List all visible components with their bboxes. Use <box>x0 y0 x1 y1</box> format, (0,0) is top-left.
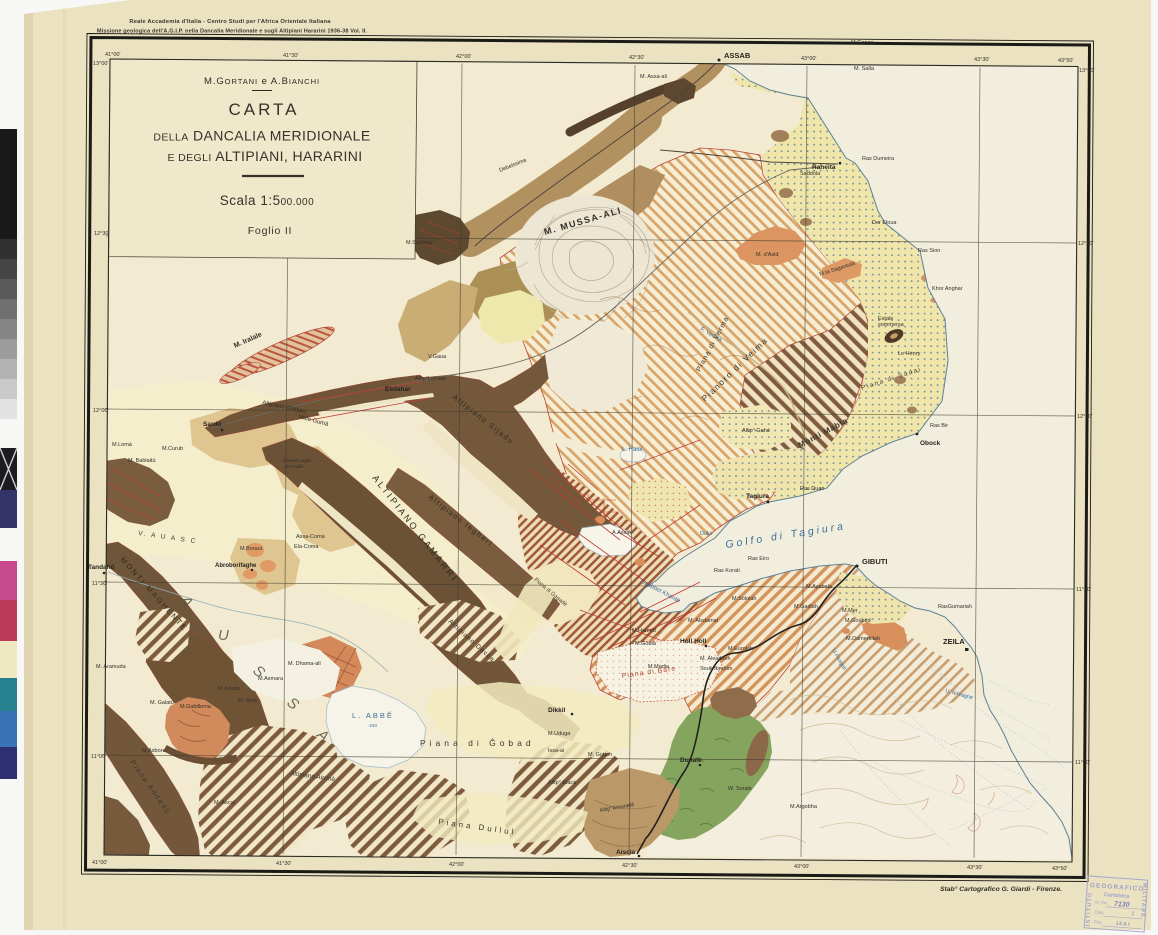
svg-text:M.Eurolah: M.Eurolah <box>728 646 753 652</box>
svg-text:Ras Dumeira: Ras Dumeira <box>862 156 895 162</box>
svg-text:M.GORTANI e A.BIANCHI: M.GORTANI e A.BIANCHI <box>204 76 320 87</box>
svg-text:41°30': 41°30' <box>276 861 292 867</box>
svg-text:1: 1 <box>1131 911 1134 917</box>
svg-text:Dunalè: Dunalè <box>680 757 702 764</box>
svg-text:GIBUTI: GIBUTI <box>862 557 887 566</box>
svg-text:M.Hamed: M.Hamed <box>632 628 656 634</box>
svg-text:Aiscia: Aiscia <box>616 849 636 856</box>
svg-text:11°30': 11°30' <box>1076 587 1091 593</box>
svg-text:Assa-Coma: Assa-Coma <box>296 534 326 540</box>
svg-text:Sardó: Sardó <box>203 421 221 428</box>
svg-text:M. Aramuda: M. Aramuda <box>96 664 127 670</box>
svg-text:43°30': 43°30' <box>974 57 990 63</box>
svg-text:Obock: Obock <box>920 440 941 447</box>
svg-text:Dikkil: Dikkil <box>548 707 566 714</box>
svg-text:12°00': 12°00' <box>1077 414 1093 420</box>
svg-text:Ela-Coma: Ela-Coma <box>294 544 319 550</box>
svg-text:M. Salta: M. Salta <box>854 66 875 72</box>
svg-text:11°00': 11°00' <box>91 754 106 760</box>
svg-text:A.Assal: A.Assal <box>612 530 631 536</box>
svg-text:Piana di Ĝobad: Piana di Ĝobad <box>420 738 535 748</box>
svg-text:sommersa: sommersa <box>878 322 905 328</box>
svg-text:M.Acurta: M.Acurta <box>218 686 241 692</box>
svg-text:42°00': 42°00' <box>456 54 472 60</box>
svg-text:Le Henry: Le Henry <box>898 351 921 357</box>
svg-text:42°00': 42°00' <box>449 862 465 868</box>
svg-text:M. Selis: M. Selis <box>238 698 258 704</box>
svg-text:M. Aleaddeh: M. Aleaddeh <box>700 656 731 662</box>
svg-text:M.Gabillema: M.Gabillema <box>180 704 212 710</box>
svg-text:M. Galatú: M. Galatú <box>150 700 174 706</box>
svg-text:W. Sorale: W. Sorale <box>728 786 752 792</box>
svg-text:Khor Anghar: Khor Anghar <box>932 286 963 292</box>
svg-text:M. Dhama-ali: M. Dhama-ali <box>288 661 321 667</box>
svg-text:Pos.: Pos. <box>1094 919 1103 925</box>
svg-text:ASSAB: ASSAB <box>724 51 751 60</box>
svg-text:Altip° Elacà: Altip° Elacà <box>548 780 577 786</box>
svg-text:Issa-ai: Issa-ai <box>548 748 564 754</box>
svg-text:43°50': 43°50' <box>1058 58 1074 64</box>
svg-text:M.Lomá: M.Lomá <box>112 442 133 448</box>
svg-text:ZEILA: ZEILA <box>943 637 965 646</box>
svg-text:Crateri-Laghi: Crateri-Laghi <box>283 458 311 464</box>
svg-text:Souk Ibrahim: Souk Ibrahim <box>700 666 733 672</box>
svg-text:M.Curub: M.Curub <box>162 446 183 452</box>
svg-text:N.°Inv.: N.°Inv. <box>1095 900 1109 906</box>
svg-text:41°30': 41°30' <box>283 53 299 59</box>
svg-text:M.Asboru: M.Asboru <box>142 748 166 754</box>
svg-text:M.Argobha: M.Argobha <box>790 804 818 810</box>
svg-text:M.Ganga: M.Ganga <box>851 40 875 46</box>
svg-text:Altip° Gahè: Altip° Gahè <box>742 428 770 434</box>
svg-text:Ras Bir: Ras Bir <box>930 423 948 429</box>
svg-text:M.Boraui: M.Boraui <box>240 546 262 552</box>
svg-text:41°00': 41°00' <box>92 860 108 866</box>
svg-text:Tagiura: Tagiura <box>746 493 769 500</box>
svg-text:42°30': 42°30' <box>622 863 638 869</box>
svg-text:M. d'Asid: M. d'Asid <box>756 252 778 258</box>
svg-text:Ras Eiro: Ras Eiro <box>748 556 769 562</box>
svg-text:Stab° Cartografico G. Giardi -: Stab° Cartografico G. Giardi - Firenze. <box>940 885 1062 893</box>
svg-text:M.Damerkilah: M.Damerkilah <box>846 636 880 642</box>
svg-text:di Fhialè: di Fhialè <box>285 464 303 470</box>
svg-text:V.Gaua: V.Gaua <box>428 354 447 360</box>
svg-text:43°00': 43°00' <box>794 864 810 870</box>
svg-text:Saddòla: Saddòla <box>800 171 821 177</box>
svg-text:43°50': 43°50' <box>1052 866 1068 872</box>
svg-text:M.Mer: M.Mer <box>842 608 858 614</box>
svg-text:Der Eloua: Der Eloua <box>872 220 897 226</box>
svg-text:M.Sololah: M.Sololah <box>732 596 756 602</box>
svg-text:42°30': 42°30' <box>629 55 645 61</box>
svg-text:41°00': 41°00' <box>105 52 121 58</box>
svg-text:M.Uduga: M.Uduga <box>548 731 571 737</box>
svg-text:Tandahó: Tandahó <box>88 564 115 571</box>
svg-text:Clas.: Clas. <box>1094 910 1105 916</box>
svg-text:13°00': 13°00' <box>93 61 109 67</box>
svg-text:M. Ascol: M. Ascol <box>214 800 235 806</box>
svg-text:U: U <box>218 627 229 644</box>
svg-text:M.Gadlah: M.Gadlah <box>794 604 818 610</box>
svg-text:RasGumariah: RasGumariah <box>938 604 972 610</box>
svg-text:M.Ayabela: M.Ayabela <box>806 584 833 590</box>
svg-text:L. Halol: L. Halol <box>622 447 642 453</box>
svg-text:M.Goubed: M.Goubed <box>845 618 871 624</box>
svg-text:M.Gobla: M.Gobla <box>635 641 657 647</box>
svg-text:Ras Sion: Ras Sion <box>918 248 940 254</box>
svg-text:Holl Holl: Holl Holl <box>680 638 707 645</box>
svg-text:M. Gotton: M. Gotton <box>588 752 612 758</box>
svg-text:M. Assa-ali: M. Assa-ali <box>640 74 667 80</box>
svg-text:Reale Accademia d'Italia - Cen: Reale Accademia d'Italia - Centro Studi … <box>129 19 331 25</box>
svg-text:CARTA: CARTA <box>228 100 299 119</box>
svg-text:Elidahar: Elidahar <box>385 386 411 393</box>
svg-text:-240: -240 <box>368 723 378 728</box>
svg-text:M. Bablaitú: M. Bablaitú <box>128 458 156 464</box>
svg-text:Dulul: Dulul <box>700 531 713 537</box>
svg-text:11°00': 11°00' <box>1075 760 1090 766</box>
svg-text:11°30': 11°30' <box>92 581 107 587</box>
svg-text:Ras Duan: Ras Duan <box>800 486 824 492</box>
svg-text:Abroborifaghe: Abroborifaghe <box>215 563 257 569</box>
svg-text:12°30': 12°30' <box>94 231 110 237</box>
svg-text:12°00': 12°00' <box>93 408 109 414</box>
svg-text:Ras Korati: Ras Korati <box>714 568 740 574</box>
svg-text:Altip°Lehadù: Altip°Lehadù <box>415 376 446 382</box>
svg-text:M.Asmara: M.Asmara <box>258 676 284 682</box>
svg-text:L. ABBĔ: L. ABBĔ <box>352 711 394 720</box>
svg-text:43°30': 43°30' <box>967 865 983 871</box>
svg-text:M. Alsdamal: M. Alsdamal <box>688 618 718 624</box>
svg-text:Raheita: Raheita <box>812 164 836 171</box>
svg-text:M.Madia: M.Madia <box>648 664 670 670</box>
svg-text:13°00': 13°00' <box>1079 68 1095 74</box>
svg-text:Foglio II: Foglio II <box>248 225 293 237</box>
svg-text:M.Subleila: M.Subleila <box>406 240 433 246</box>
svg-text:12°30': 12°30' <box>1078 241 1094 247</box>
svg-text:43°00': 43°00' <box>801 56 817 62</box>
